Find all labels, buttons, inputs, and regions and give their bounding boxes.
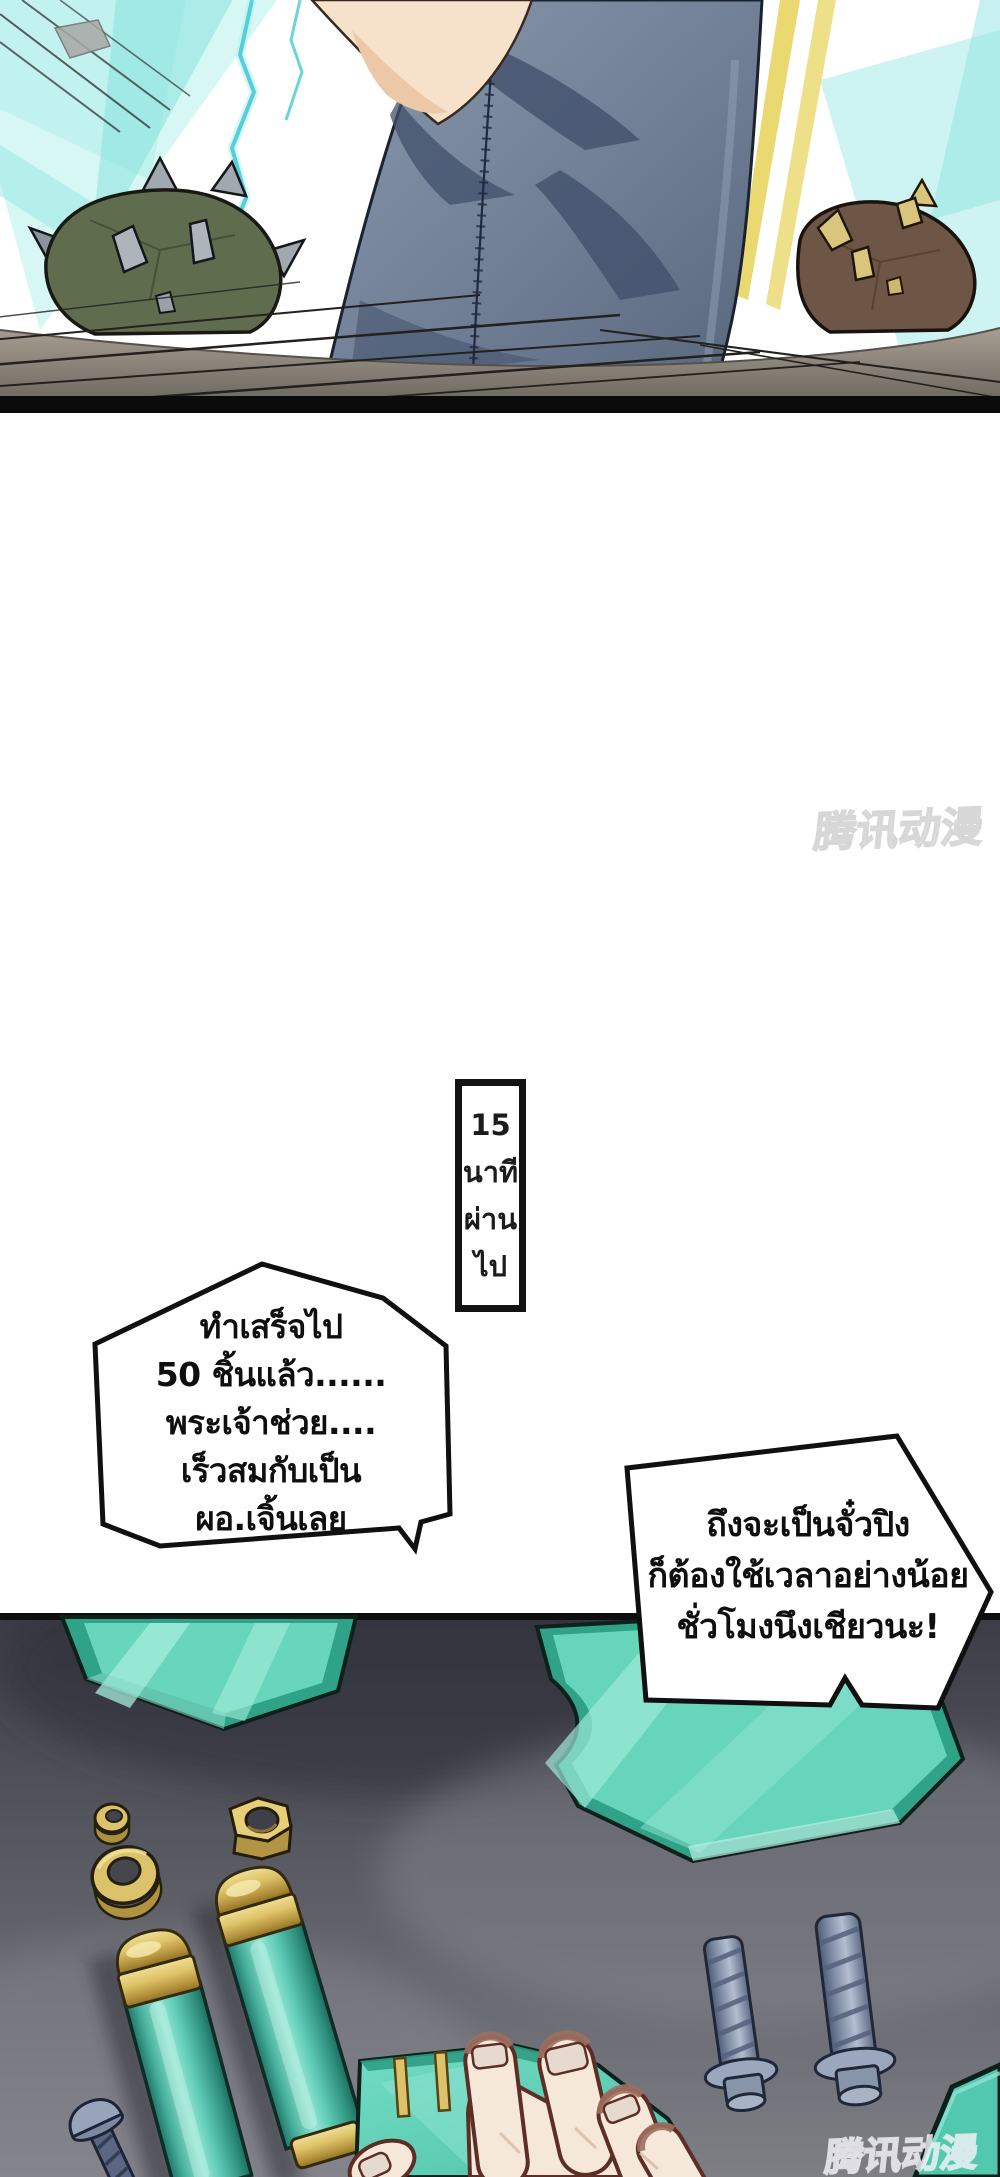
dialogue-line: พระเจ้าช่วย.... [166, 1399, 376, 1447]
speech-bubble-left-text: ทำเสร็จไป 50 ชิ้นแล้ว...... พระเจ้าช่วย.… [108, 1298, 434, 1548]
dialogue-line: ก็ต้องใช้เวลาอย่างน้อย [647, 1551, 968, 1602]
time-caption-box: 15 นาที ผ่าน ไป [455, 1079, 526, 1312]
dialogue-line: ทำเสร็จไป [200, 1303, 343, 1351]
dialogue-line: 50 ชิ้นแล้ว...... [156, 1351, 387, 1399]
watermark-tencent-comics-top: 腾讯动漫 [811, 793, 986, 860]
dialogue-line: ผอ.เจิ้นเลย [195, 1495, 346, 1543]
dialogue-line: เร็วสมกับเป็น [181, 1447, 361, 1495]
caption-line: ผ่าน [464, 1196, 517, 1243]
brass-washer-small [95, 1804, 129, 1844]
watermark-tencent-comics-bottom: 腾讯动漫 [823, 2121, 981, 2177]
panel-border-bar [0, 396, 1000, 413]
dialogue-line: ชั่วโมงนึงเชียวนะ! [676, 1602, 939, 1653]
panel-action-scene [0, 0, 1000, 413]
speech-bubble-right-text: ถึงจะเป็นจั๋วปิง ก็ต้องใช้เวลาอย่างน้อย … [628, 1496, 988, 1656]
fingernail [471, 2043, 507, 2069]
dialogue-line: ถึงจะเป็นจั๋วปิง [706, 1500, 910, 1551]
caption-line: 15 [470, 1102, 510, 1149]
caption-line: นาที [463, 1149, 518, 1196]
brass-hex-nut [230, 1798, 291, 1859]
comic-page: 腾讯动漫 15 นาที ผ่าน ไป [0, 0, 1000, 2177]
character-torso [312, 0, 762, 413]
caption-line: ไป [474, 1243, 507, 1290]
